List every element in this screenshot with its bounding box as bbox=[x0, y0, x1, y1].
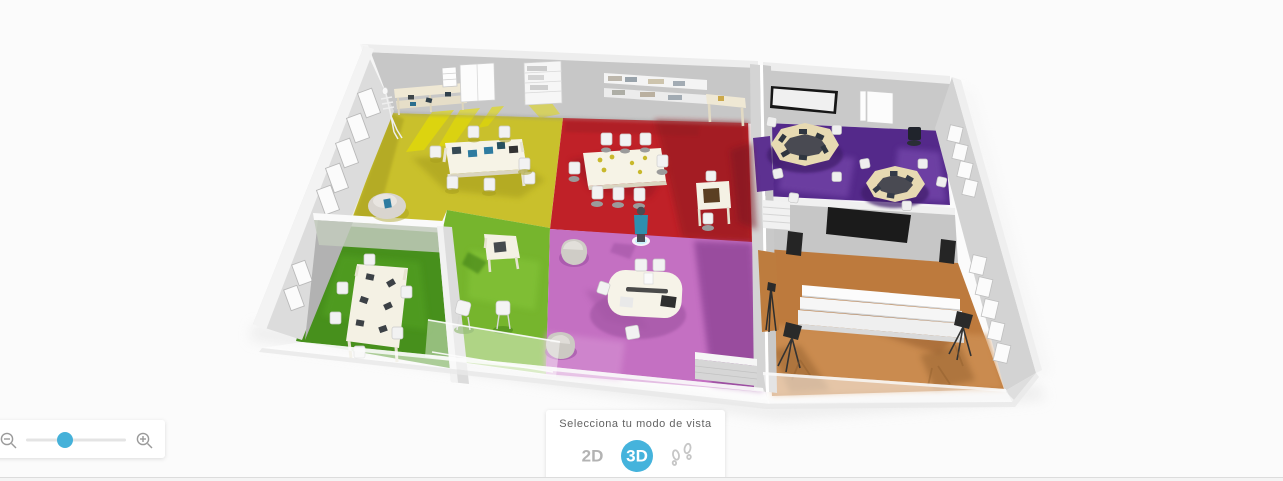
svg-text:3D: 3D bbox=[626, 447, 648, 466]
svg-text:2D: 2D bbox=[582, 447, 604, 466]
